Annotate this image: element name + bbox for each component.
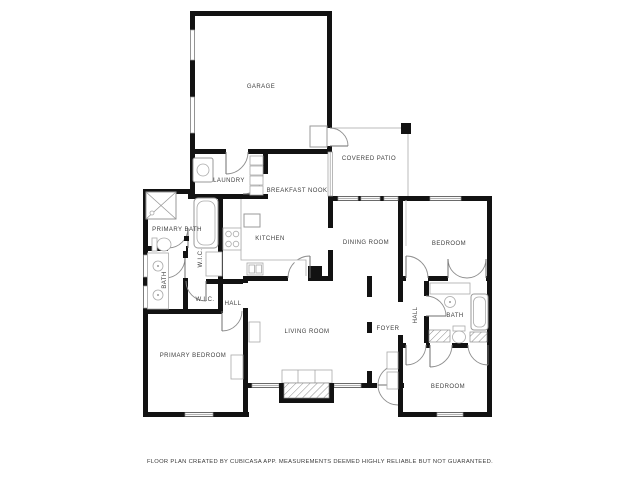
room-label-covered-patio: COVERED PATIO (342, 156, 396, 162)
utility-unit (387, 372, 398, 389)
vanity-right (430, 283, 470, 294)
room-label-bedroom-ne: BEDROOM (432, 241, 466, 247)
toilet (453, 331, 466, 343)
refrigerator-cabinet (244, 214, 260, 227)
pantry-shelves (250, 156, 263, 195)
shower (146, 192, 176, 219)
closet-shelving (429, 330, 450, 342)
utility-box (310, 126, 327, 147)
room-label-bedroom-se: BEDROOM (431, 384, 465, 390)
room-label-breakfast-nook: BREAKFAST NOOK (267, 188, 328, 194)
floor-plan-page: GARAGE COVERED PATIO LAUNDRY BREAKFAST N… (0, 0, 640, 480)
room-label-living-room: LIVING ROOM (285, 329, 330, 335)
stove (223, 228, 241, 250)
room-label-wic-upper: W.I.C. (198, 248, 204, 267)
room-label-wic-lower: W.I.C. (195, 297, 214, 303)
floor-plan-drawing: GARAGE COVERED PATIO LAUNDRY BREAKFAST N… (0, 0, 640, 480)
room-label-hall-left: HALL (225, 301, 242, 307)
toilet-tank (453, 326, 465, 331)
closet-shelving (470, 332, 487, 342)
room-label-primary-bath: PRIMARY BATH (152, 227, 202, 233)
room-label-dining-room: DINING ROOM (343, 240, 389, 246)
room-label-primary-bedroom: PRIMARY BEDROOM (160, 353, 227, 359)
room-label-kitchen: KITCHEN (255, 236, 285, 242)
toilet-primary (152, 238, 171, 251)
dresser (206, 252, 222, 276)
room-label-bath-left: BATH (162, 271, 168, 288)
dresser (231, 355, 243, 379)
utility-unit (387, 352, 398, 369)
door-stop (184, 236, 189, 241)
hearth (282, 370, 332, 383)
room-label-bath-right: BATH (446, 313, 463, 319)
room-label-garage: GARAGE (247, 84, 275, 90)
room-label-hall-right: HALL (413, 306, 419, 323)
footer-disclaimer: FLOOR PLAN CREATED BY CUBICASA APP. MEAS… (147, 459, 493, 465)
fireplace (279, 370, 334, 403)
patio-post (401, 123, 411, 134)
room-label-foyer: FOYER (377, 326, 400, 332)
shelf (249, 322, 260, 342)
room-label-laundry: LAUNDRY (213, 178, 245, 184)
bathtub-primary (194, 198, 218, 248)
